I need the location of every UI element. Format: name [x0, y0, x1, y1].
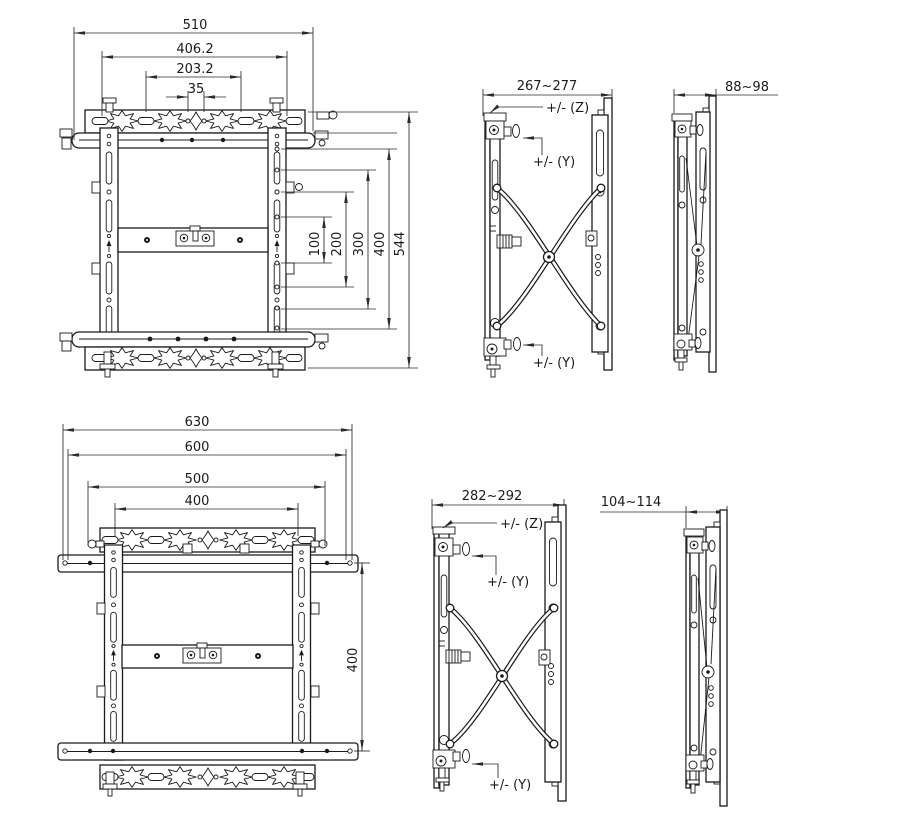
dim-label-300: 300 [352, 232, 367, 257]
dim-35: 35 [166, 82, 226, 112]
slot-cutout [238, 118, 254, 125]
dim-label-35: 35 [188, 82, 205, 97]
slot-cutout [138, 355, 154, 362]
front-view-bottom-part [58, 528, 358, 796]
star-cutout [220, 767, 253, 788]
dim-label-400: 400 [373, 232, 388, 257]
scissor-mechanism-2 [446, 604, 558, 748]
label-y-top-text-2: +/- (Y) [487, 575, 529, 590]
star-cutout [206, 111, 239, 132]
folded-mount-bottom [684, 510, 727, 806]
dim-label-406-2: 406.2 [176, 42, 213, 57]
side-view-folded-bottom: 104~114 [600, 495, 727, 806]
middle-crossbar-2 [122, 643, 293, 668]
slot-cutout [138, 118, 154, 125]
dim-label-200: 200 [330, 232, 345, 257]
dim-88-98: 88~98 [674, 80, 778, 113]
front-view-top-dimensions: 510 406.2 203.2 35 544 400 [74, 18, 418, 368]
front-view-bottom: 630 600 500 400 400 [58, 415, 370, 796]
side-view-folded-top: 88~98 [672, 80, 778, 372]
vertical-rail-right [268, 128, 286, 358]
tv-bracket-side-2 [433, 527, 470, 791]
dim-label-600: 600 [185, 440, 210, 455]
vertical-rail-left [105, 545, 123, 760]
folded-mount-top [672, 96, 716, 372]
slot-cutout [252, 774, 268, 781]
wall-plate-top-2 [88, 528, 327, 553]
dim-104-114: 104~114 [600, 495, 727, 528]
wall-bracket-side-2 [539, 505, 566, 801]
dim-label-203-2: 203.2 [176, 62, 213, 77]
vertical-rail-left [100, 128, 118, 358]
slot-cutout [92, 118, 108, 125]
dim-100-v: 100 [281, 217, 332, 263]
dim-label-630: 630 [185, 415, 210, 430]
dim-label-400h: 400 [185, 494, 210, 509]
dim-300-v: 300 [281, 170, 376, 309]
tv-bracket-side [484, 113, 521, 377]
label-y-adjust-top-2: +/- (Y) [472, 556, 529, 590]
label-z-text: +/- (Z) [546, 101, 589, 116]
slot-cutout [286, 355, 302, 362]
vertical-rail-right [293, 545, 311, 760]
slot-cutout [238, 355, 254, 362]
slot-cutout [252, 537, 268, 544]
label-y-adjust-bottom: +/- (Y) [523, 345, 575, 371]
spring-adjuster-2 [446, 650, 470, 663]
label-y-bottom-text: +/- (Y) [533, 356, 575, 371]
wide-rail-bottom [58, 743, 358, 760]
dim-label-544: 544 [393, 232, 408, 257]
dim-label-267-277: 267~277 [517, 79, 578, 94]
front-view-top: 510 406.2 203.2 35 544 400 [60, 18, 418, 377]
label-z-adjust-2: +/- (Z) [443, 517, 543, 532]
slot-cutout [148, 774, 164, 781]
technical-drawing-page: 510 406.2 203.2 35 544 400 [0, 0, 924, 818]
slot-cutout [148, 537, 164, 544]
wide-rail-top [58, 555, 358, 572]
star-cutout [206, 348, 239, 369]
dim-406-2: 406.2 [102, 42, 287, 116]
dim-label-400v: 400 [346, 648, 361, 673]
label-y-bottom-text-2: +/- (Y) [489, 778, 531, 793]
slot-cutout [286, 118, 302, 125]
dim-label-88-98: 88~98 [725, 80, 769, 95]
spring-adjuster [497, 235, 521, 248]
dim-label-104-114: 104~114 [601, 495, 662, 510]
star-cutout [154, 111, 187, 132]
label-y-top-text: +/- (Y) [533, 155, 575, 170]
dim-label-500: 500 [185, 472, 210, 487]
star-cutout [154, 348, 187, 369]
dim-label-510: 510 [183, 18, 208, 33]
dim-label-282-292: 282~292 [462, 489, 523, 504]
wall-plate-bottom [85, 347, 305, 377]
label-z-text-2: +/- (Z) [500, 517, 543, 532]
front-view-top-part [60, 98, 337, 377]
label-y-adjust-top: +/- (Y) [523, 138, 575, 170]
technical-drawing-canvas: 510 406.2 203.2 35 544 400 [0, 0, 924, 818]
dim-label-100: 100 [308, 232, 323, 257]
scissor-mechanism [493, 184, 605, 330]
middle-crossbar [118, 226, 268, 252]
star-cutout [164, 767, 197, 788]
dim-400-v: 400 [281, 133, 397, 329]
side-view-extended-top: 267~277 [483, 79, 612, 377]
wall-plate-bottom-2 [100, 765, 315, 796]
dim-400-v2: 400 [346, 563, 370, 751]
star-cutout [116, 767, 149, 788]
label-y-adjust-bottom-2: +/- (Y) [472, 764, 531, 793]
side-view-extended-bottom: 282~292 [432, 489, 566, 801]
